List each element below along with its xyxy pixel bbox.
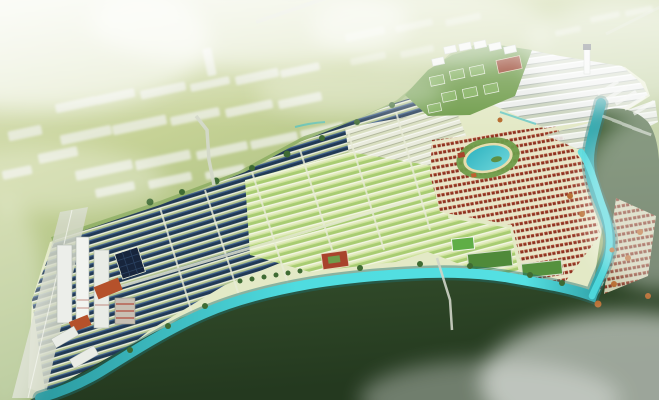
mist-patch-center xyxy=(255,68,445,116)
sports-field xyxy=(451,237,474,251)
aerial-render-svg xyxy=(0,0,659,400)
aerial-masterplan-image xyxy=(0,0,659,400)
